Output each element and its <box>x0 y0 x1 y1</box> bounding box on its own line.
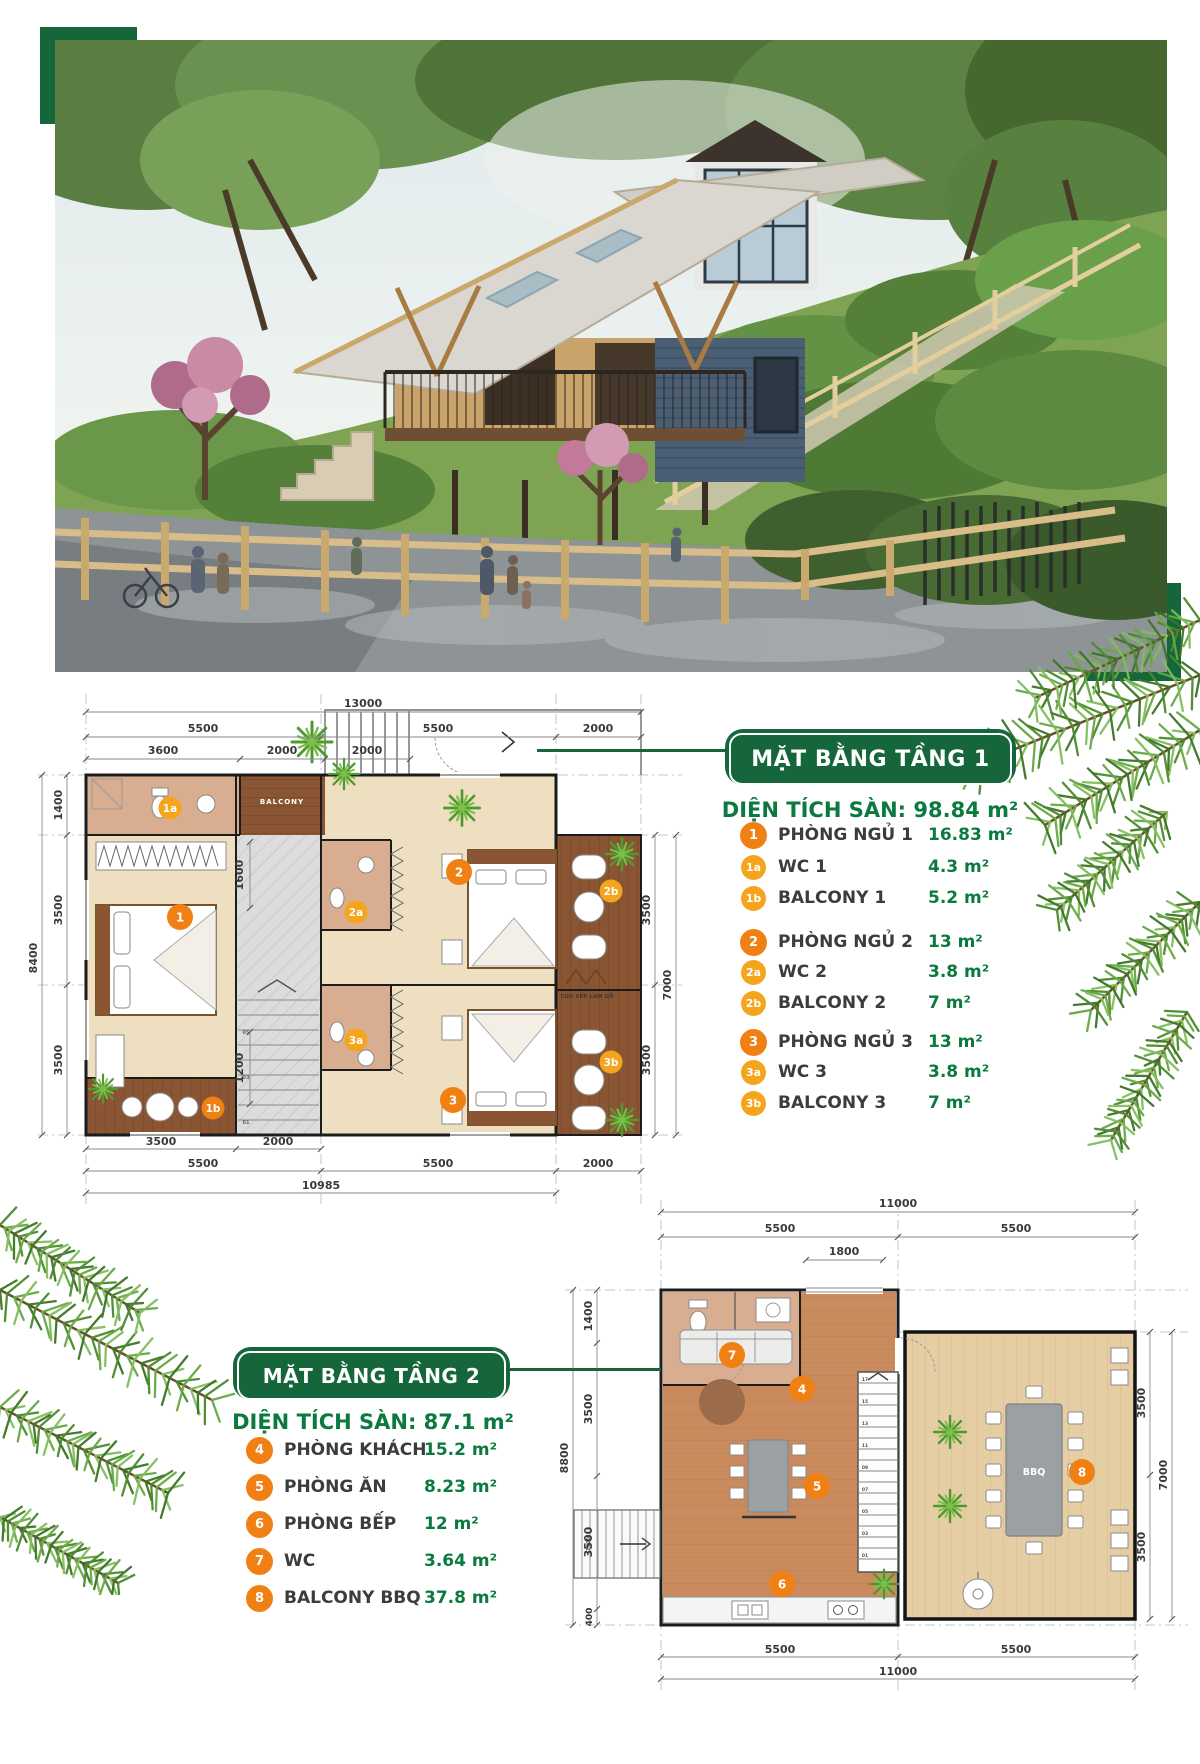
svg-text:4: 4 <box>798 1383 806 1397</box>
dims-top: 13000 5500 5500 2000 3600 2000 2000 <box>83 697 644 762</box>
legend-label: PHÒNG KHÁCH <box>284 1440 427 1460</box>
svg-text:13000: 13000 <box>344 697 383 710</box>
legend-label: BALCONY 2 <box>778 993 886 1013</box>
legend-badge: 1 <box>740 822 767 849</box>
svg-text:3600: 3600 <box>148 744 179 757</box>
round-rug <box>699 1379 745 1425</box>
svg-text:2a: 2a <box>349 907 363 919</box>
stair-number: 01 <box>243 1120 250 1126</box>
connector-line-2 <box>508 1368 661 1371</box>
svg-text:1a: 1a <box>163 803 177 815</box>
dims-left: 8400 1400 3500 3500 <box>27 772 70 1138</box>
plan2-area: DIỆN TÍCH SÀN: 87.1 m² <box>213 1410 533 1434</box>
legend-badge: 2b <box>741 991 766 1016</box>
legend-value: 12 m² <box>424 1514 479 1534</box>
svg-text:1: 1 <box>176 911 184 925</box>
svg-text:3500: 3500 <box>1135 1387 1148 1418</box>
svg-text:1200: 1200 <box>233 1052 246 1083</box>
hero-photo <box>55 40 1167 672</box>
svg-text:17: 17 <box>862 1377 868 1383</box>
svg-text:400: 400 <box>585 1608 595 1627</box>
plant-icon <box>934 1490 966 1522</box>
legend-value: 3.8 m² <box>928 962 989 982</box>
svg-text:3500: 3500 <box>52 894 65 925</box>
legend-label: PHÒNG NGỦ 3 <box>778 1032 913 1052</box>
legend-badge: 3 <box>740 1029 767 1056</box>
plant-icon <box>329 759 359 789</box>
svg-text:8: 8 <box>1078 1466 1086 1480</box>
legend-value: 7 m² <box>928 1093 971 1113</box>
legend-label: PHÒNG BẾP <box>284 1514 396 1534</box>
plant-icon <box>606 838 638 870</box>
legend-badge: 4 <box>246 1437 273 1464</box>
plan1-banner: MẶT BẰNG TẦNG 1 <box>725 729 1016 785</box>
legend-label: WC 2 <box>778 962 827 982</box>
legend-badge: 6 <box>246 1511 273 1538</box>
floor-plan-2: 17 15 13 11 09 07 05 03 01 1400 BBQ <box>470 1180 1200 1700</box>
svg-text:07: 07 <box>862 1487 868 1493</box>
connector-line-1 <box>537 749 727 752</box>
svg-text:5500: 5500 <box>423 722 454 735</box>
plan1-banner-title: MẶT BẰNG TẦNG 1 <box>729 733 1012 785</box>
svg-text:3500: 3500 <box>1135 1531 1148 1562</box>
svg-text:5500: 5500 <box>188 722 219 735</box>
svg-text:11000: 11000 <box>879 1197 918 1210</box>
legend-label: BALCONY 3 <box>778 1093 886 1113</box>
svg-text:1800: 1800 <box>829 1245 860 1258</box>
svg-text:2: 2 <box>455 866 463 880</box>
svg-text:3500: 3500 <box>582 1526 595 1557</box>
svg-text:2b: 2b <box>604 886 619 898</box>
plan2-banner-title: MẶT BẰNG TẦNG 2 <box>237 1351 506 1400</box>
plan2-area-label: DIỆN TÍCH SÀN: <box>232 1410 416 1434</box>
balcony-1b-furniture <box>122 1093 198 1121</box>
legend-label: WC 1 <box>778 857 827 877</box>
legend-label: WC 3 <box>778 1062 827 1082</box>
svg-text:3500: 3500 <box>640 1044 653 1075</box>
legend-badge: 1a <box>741 855 766 880</box>
plan2-area-value: 87.1 m² <box>424 1410 514 1434</box>
svg-text:2000: 2000 <box>352 744 383 757</box>
svg-text:3: 3 <box>449 1094 457 1108</box>
svg-text:2000: 2000 <box>267 744 298 757</box>
floor-plan-1: 05 03 01 <box>10 680 690 1240</box>
svg-text:5500: 5500 <box>423 1157 454 1170</box>
bbq-label: BBQ <box>1023 1467 1046 1478</box>
legend-value: 13 m² <box>928 932 983 952</box>
legend-label: BALCONY BBQ <box>284 1588 421 1608</box>
kitchen-counter <box>663 1597 896 1623</box>
legend-badge: 1b <box>741 886 766 911</box>
pine-branch-bottom-left <box>0 1195 260 1595</box>
legend-value: 13 m² <box>928 1032 983 1052</box>
hero-photo-illustration <box>55 40 1167 672</box>
entry-arrow-icon <box>502 732 514 752</box>
svg-text:3500: 3500 <box>146 1135 177 1148</box>
svg-text:8400: 8400 <box>27 942 40 973</box>
svg-text:2000: 2000 <box>583 1157 614 1170</box>
legend-label: PHÒNG NGỦ 1 <box>778 825 913 845</box>
brochure-page: 05 03 01 <box>0 0 1200 1764</box>
legend-badge: 8 <box>246 1585 273 1612</box>
balcony-label: BALCONY <box>260 798 304 806</box>
legend-badge: 2a <box>741 960 766 985</box>
svg-text:15: 15 <box>862 1399 868 1405</box>
legend-value: 15.2 m² <box>424 1440 497 1460</box>
legend-label: PHÒNG ĂN <box>284 1477 387 1497</box>
legend-value: 8.23 m² <box>424 1477 497 1497</box>
plant-icon <box>934 1416 966 1448</box>
svg-text:3500: 3500 <box>640 894 653 925</box>
svg-text:5500: 5500 <box>765 1643 796 1656</box>
dims-right: 3500 3500 7000 <box>1135 1329 1175 1622</box>
svg-text:5500: 5500 <box>765 1222 796 1235</box>
svg-text:3a: 3a <box>349 1035 363 1047</box>
legend-value: 5.2 m² <box>928 888 989 908</box>
plant-icon <box>292 722 332 762</box>
svg-text:1400: 1400 <box>582 1300 595 1331</box>
svg-text:3b: 3b <box>604 1057 619 1069</box>
plan1-area-label: DIỆN TÍCH SÀN: <box>722 798 906 822</box>
legend-value: 4.3 m² <box>928 857 989 877</box>
svg-text:3500: 3500 <box>52 1044 65 1075</box>
svg-text:1400: 1400 <box>52 789 65 820</box>
svg-text:7000: 7000 <box>1157 1459 1170 1490</box>
legend-label: PHÒNG NGỦ 2 <box>778 932 913 952</box>
plan1-area: DIỆN TÍCH SÀN: 98.84 m² <box>710 798 1030 822</box>
svg-text:5500: 5500 <box>188 1157 219 1170</box>
legend-badge: 2 <box>740 929 767 956</box>
plant-icon <box>870 1570 899 1599</box>
legend-value: 3.64 m² <box>424 1551 497 1571</box>
svg-text:3500: 3500 <box>582 1393 595 1424</box>
internal-stairs: 17 15 13 11 09 07 05 03 01 <box>858 1372 898 1572</box>
svg-text:1b: 1b <box>206 1103 221 1115</box>
svg-text:05: 05 <box>862 1509 868 1515</box>
svg-text:01: 01 <box>862 1553 868 1559</box>
plant-icon <box>606 1104 638 1136</box>
legend-label: BALCONY 1 <box>778 888 886 908</box>
svg-text:2000: 2000 <box>583 722 614 735</box>
svg-text:03: 03 <box>862 1531 868 1537</box>
svg-text:6: 6 <box>778 1578 786 1592</box>
plant-icon <box>444 790 479 825</box>
svg-text:2000: 2000 <box>263 1135 294 1148</box>
legend-badge: 5 <box>246 1474 273 1501</box>
plant-icon <box>89 1075 118 1104</box>
legend-value: 3.8 m² <box>928 1062 989 1082</box>
svg-text:8800: 8800 <box>558 1442 571 1473</box>
plan1-area-value: 98.84 m² <box>913 798 1018 822</box>
legend-value: 16.83 m² <box>928 825 1013 845</box>
legend-value: 37.8 m² <box>424 1588 497 1608</box>
folding-door-label: CỬA XẾP LAM GỖ <box>560 992 613 1000</box>
svg-text:10985: 10985 <box>302 1179 340 1192</box>
svg-text:09: 09 <box>862 1465 868 1471</box>
legend-badge: 3b <box>741 1091 766 1116</box>
svg-text:5: 5 <box>813 1480 821 1494</box>
legend-value: 7 m² <box>928 993 971 1013</box>
svg-text:11: 11 <box>862 1443 868 1449</box>
legend-badge: 3a <box>741 1060 766 1085</box>
svg-text:11000: 11000 <box>879 1665 918 1678</box>
legend-badge: 7 <box>246 1548 273 1575</box>
svg-text:5500: 5500 <box>1001 1643 1032 1656</box>
svg-text:5500: 5500 <box>1001 1222 1032 1235</box>
svg-text:7: 7 <box>728 1349 736 1363</box>
svg-text:13: 13 <box>862 1421 868 1427</box>
svg-text:7000: 7000 <box>661 969 674 1000</box>
legend-label: WC <box>284 1551 315 1571</box>
svg-text:1600: 1600 <box>233 859 246 890</box>
plan2-banner: MẶT BẰNG TẦNG 2 <box>233 1347 510 1400</box>
